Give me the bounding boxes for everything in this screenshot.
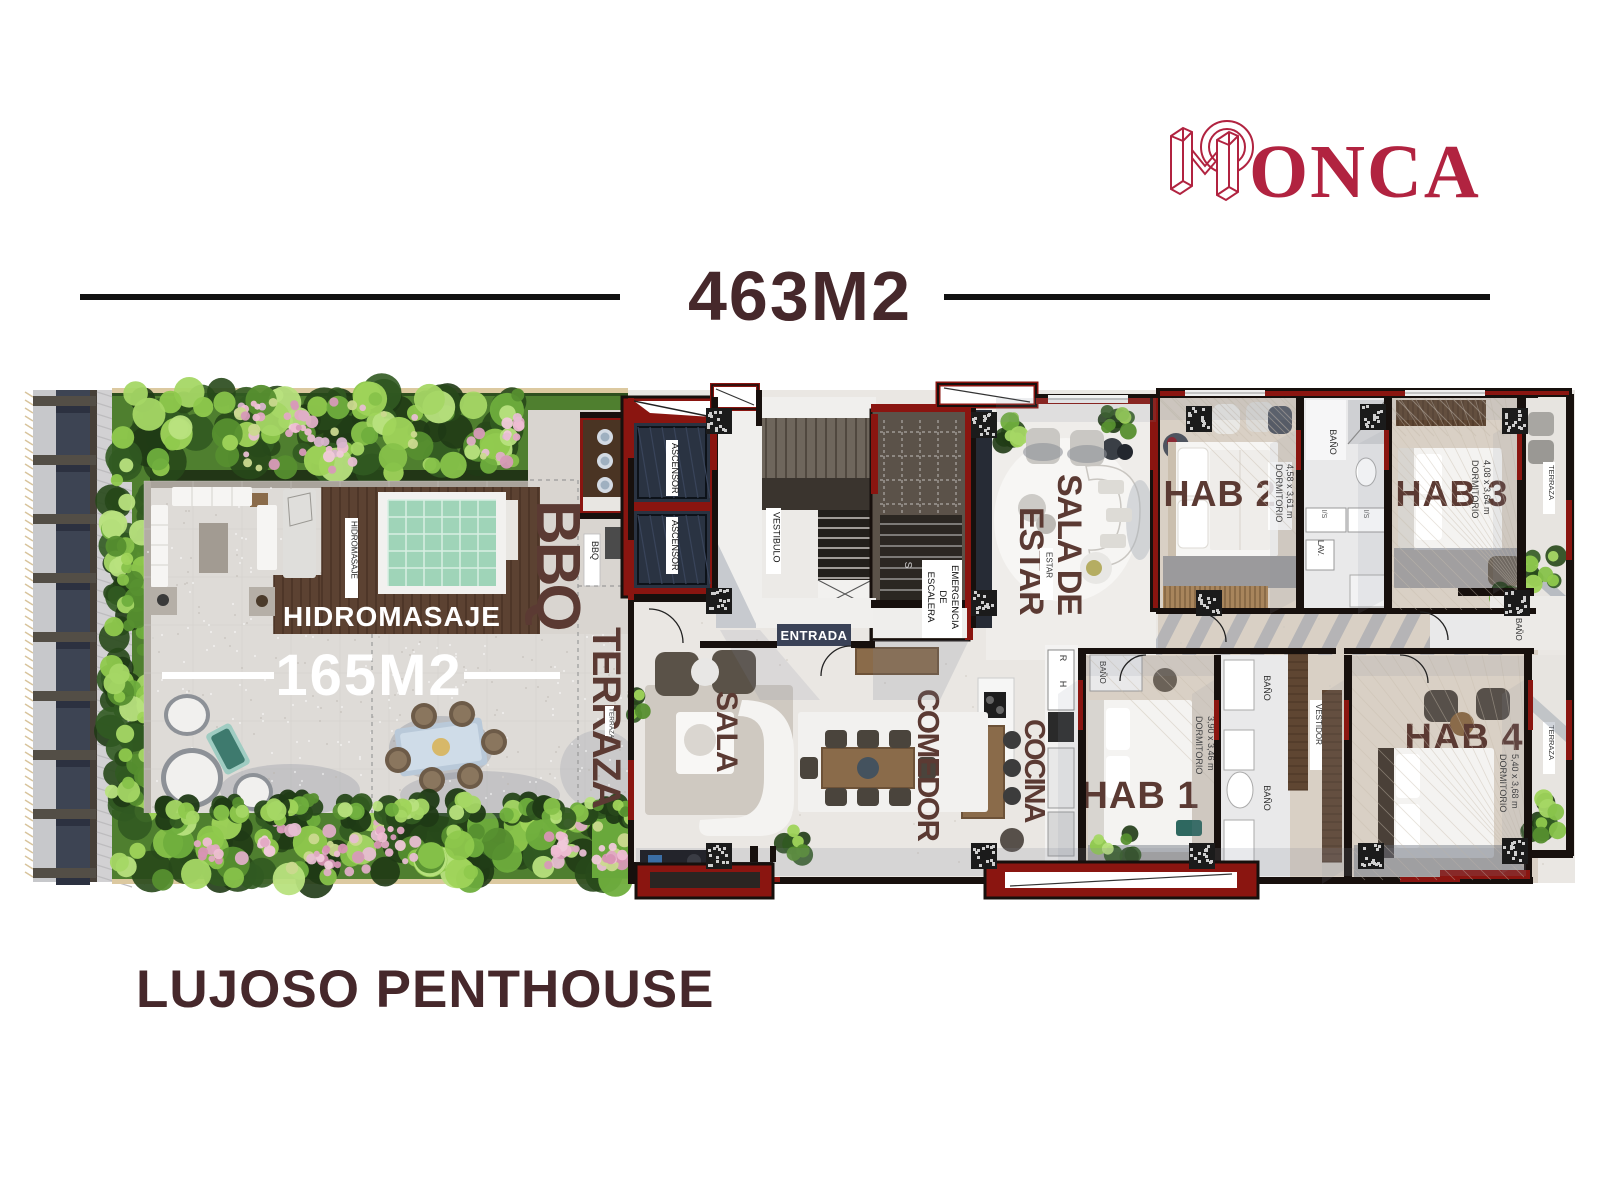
svg-text:EMERGENCIA: EMERGENCIA	[949, 565, 960, 630]
svg-text:BAÑO: BAÑO	[1262, 675, 1272, 701]
svg-text:COMEDOR: COMEDOR	[911, 689, 946, 842]
svg-text:ASCENSOR: ASCENSOR	[670, 443, 680, 494]
svg-text:ONCA: ONCA	[1249, 130, 1481, 214]
svg-text:LUJOSO PENTHOUSE: LUJOSO PENTHOUSE	[136, 960, 714, 1019]
svg-text:BAÑO: BAÑO	[1328, 429, 1338, 455]
svg-text:COCINA: COCINA	[1018, 719, 1050, 823]
svg-text:ENTRADA: ENTRADA	[780, 628, 847, 643]
svg-text:SALA DE: SALA DE	[1050, 474, 1088, 615]
svg-text:VESTIDOR: VESTIDOR	[1314, 704, 1323, 745]
svg-text:ASCENSOR: ASCENSOR	[670, 520, 680, 571]
svg-text:165M2: 165M2	[275, 643, 462, 708]
svg-text:H: H	[1058, 681, 1068, 688]
svg-text:HIDROMASAJE: HIDROMASAJE	[283, 601, 501, 632]
svg-text:BAÑO: BAÑO	[1262, 785, 1272, 811]
svg-text:TERRAZA: TERRAZA	[1547, 465, 1556, 500]
svg-text:TERRAZA: TERRAZA	[608, 708, 615, 739]
svg-text:VESTIBULO: VESTIBULO	[772, 512, 782, 563]
svg-text:DE: DE	[937, 590, 948, 603]
svg-text:HAB 2: HAB 2	[1163, 473, 1276, 514]
svg-text:BBQ: BBQ	[523, 500, 592, 630]
svg-text:ESTAR: ESTAR	[1045, 552, 1054, 578]
svg-text:R: R	[1058, 655, 1068, 662]
svg-text:S: S	[902, 562, 913, 569]
svg-text:LAV.: LAV.	[1316, 540, 1325, 556]
svg-text:SALA: SALA	[710, 691, 743, 773]
svg-text:463M2: 463M2	[688, 257, 912, 335]
svg-text:BAÑO: BAÑO	[1514, 618, 1523, 641]
svg-text:HIDROMASAJE: HIDROMASAJE	[350, 521, 359, 579]
svg-text:ESCALERA: ESCALERA	[925, 572, 936, 623]
svg-text:I/S: I/S	[1320, 510, 1327, 519]
svg-text:HAB 1: HAB 1	[1080, 775, 1199, 817]
